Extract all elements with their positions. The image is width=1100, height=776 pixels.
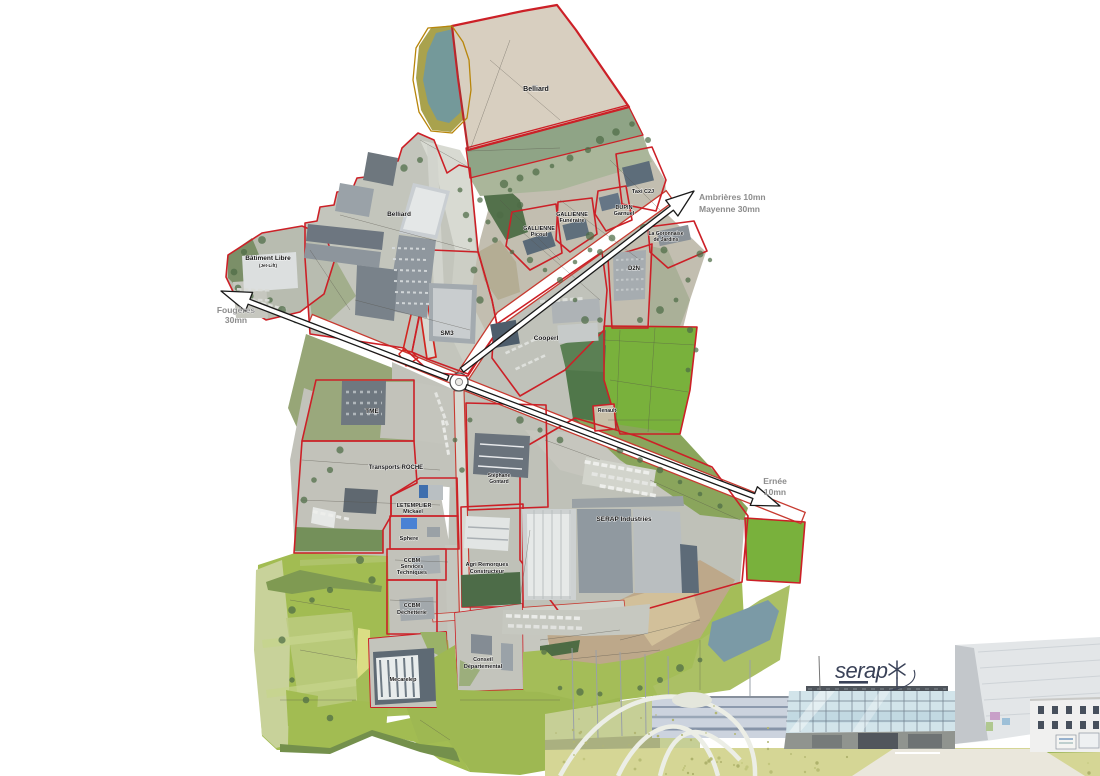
svg-text:Ernée: Ernée <box>763 476 787 486</box>
svg-text:Transports ROCHE: Transports ROCHE <box>369 465 423 471</box>
svg-text:Fougères: Fougères <box>217 305 256 315</box>
svg-text:Belliard: Belliard <box>523 86 549 93</box>
svg-text:D2N: D2N <box>628 266 640 272</box>
svg-text:Départemental: Départemental <box>464 664 503 670</box>
svg-text:Gontard: Gontard <box>489 479 508 485</box>
svg-text:SERAP Industries: SERAP Industries <box>596 516 652 523</box>
svg-text:Sphere: Sphere <box>400 536 419 542</box>
svg-text:(Jet-Lift): (Jet-Lift) <box>259 263 277 268</box>
svg-text:Mayenne 30mn: Mayenne 30mn <box>699 204 760 214</box>
svg-text:Garnuel: Garnuel <box>614 211 635 217</box>
svg-text:Techniques: Techniques <box>397 570 427 576</box>
svg-text:Constructeur: Constructeur <box>470 569 505 575</box>
svg-text:Agri Remorques: Agri Remorques <box>466 562 509 568</box>
svg-text:10mn: 10mn <box>764 487 786 497</box>
svg-text:Conseil: Conseil <box>473 657 493 663</box>
svg-text:Taxi C2J: Taxi C2J <box>632 189 654 195</box>
svg-text:Renault: Renault <box>598 408 617 414</box>
svg-text:TME: TME <box>365 408 379 415</box>
svg-text:serap: serap <box>835 658 888 683</box>
svg-text:Picoul: Picoul <box>531 232 548 238</box>
svg-text:Mickael: Mickael <box>403 509 423 515</box>
svg-text:Belliard: Belliard <box>387 211 411 218</box>
svg-text:CCBM: CCBM <box>404 603 421 609</box>
svg-text:Funéraire: Funéraire <box>559 218 584 224</box>
svg-text:30mn: 30mn <box>225 315 247 325</box>
svg-text:Ambrières 10mn: Ambrières 10mn <box>699 192 766 202</box>
svg-text:Mecarelep: Mecarelep <box>390 677 418 683</box>
svg-text:Cooperl: Cooperl <box>534 335 559 342</box>
svg-text:de Jardins: de Jardins <box>653 237 678 243</box>
svg-text:Bâtiment Libre: Bâtiment Libre <box>245 255 291 262</box>
svg-text:SM3: SM3 <box>440 330 454 337</box>
svg-text:Déchetterie: Déchetterie <box>397 610 427 616</box>
